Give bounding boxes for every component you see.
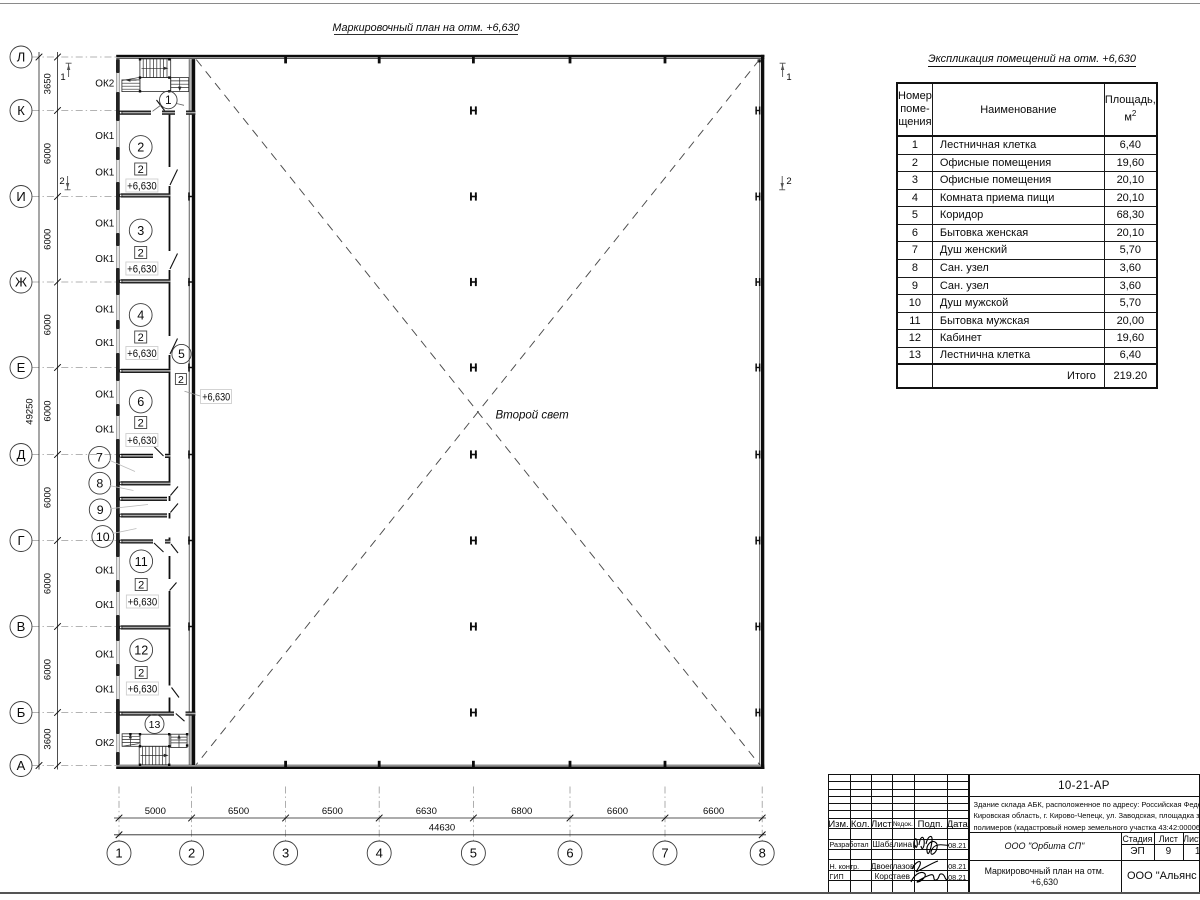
svg-text:ОК1: ОК1: [95, 131, 114, 142]
svg-text:1: 1: [165, 95, 171, 107]
svg-text:5000: 5000: [145, 806, 166, 817]
svg-text:2: 2: [138, 332, 144, 344]
svg-text:6000: 6000: [43, 229, 54, 250]
svg-text:Л: Л: [17, 50, 26, 65]
svg-text:+6,630: +6,630: [202, 392, 230, 404]
svg-text:И: И: [16, 189, 25, 204]
svg-text:6600: 6600: [607, 806, 628, 817]
svg-text:6000: 6000: [43, 487, 54, 508]
svg-text:5: 5: [178, 347, 185, 361]
svg-text:6000: 6000: [43, 143, 54, 164]
svg-text:6600: 6600: [703, 806, 724, 817]
svg-text:6800: 6800: [511, 806, 532, 817]
svg-text:4: 4: [376, 846, 383, 861]
svg-text:+6,630: +6,630: [128, 684, 158, 696]
svg-text:6500: 6500: [322, 806, 343, 817]
svg-text:7: 7: [661, 846, 668, 861]
svg-text:+6,630: +6,630: [127, 435, 157, 447]
svg-text:6000: 6000: [43, 400, 54, 421]
svg-text:8: 8: [759, 846, 766, 861]
svg-text:7: 7: [96, 451, 103, 465]
svg-text:6000: 6000: [43, 314, 54, 335]
svg-text:Б: Б: [17, 705, 26, 720]
svg-text:3600: 3600: [43, 728, 54, 749]
svg-text:ОК1: ОК1: [95, 425, 114, 436]
svg-text:1: 1: [60, 72, 65, 83]
svg-text:2: 2: [188, 846, 195, 861]
svg-text:10: 10: [96, 530, 110, 544]
svg-text:ОК2: ОК2: [95, 79, 114, 90]
svg-text:ОК1: ОК1: [95, 338, 114, 349]
svg-text:6630: 6630: [416, 806, 437, 817]
svg-text:2: 2: [138, 418, 144, 430]
svg-text:2: 2: [137, 141, 144, 155]
svg-text:+6,630: +6,630: [127, 348, 157, 360]
svg-text:6: 6: [566, 846, 573, 861]
svg-text:+6,630: +6,630: [128, 597, 158, 609]
svg-text:Г: Г: [17, 533, 24, 548]
svg-text:ОК1: ОК1: [95, 390, 114, 401]
svg-text:1: 1: [115, 846, 122, 861]
svg-text:Ж: Ж: [15, 275, 27, 290]
svg-text:Второй свет: Второй свет: [496, 409, 570, 421]
svg-text:ОК1: ОК1: [95, 650, 114, 661]
svg-text:1: 1: [786, 72, 791, 83]
svg-text:49250: 49250: [25, 398, 36, 424]
svg-text:2: 2: [138, 668, 144, 680]
svg-text:ОК1: ОК1: [95, 168, 114, 179]
svg-text:5: 5: [470, 846, 477, 861]
svg-text:3: 3: [282, 846, 289, 861]
svg-text:6: 6: [137, 395, 144, 409]
svg-text:Д: Д: [17, 447, 26, 462]
svg-text:6500: 6500: [228, 806, 249, 817]
svg-text:6000: 6000: [43, 573, 54, 594]
svg-text:ОК1: ОК1: [95, 254, 114, 265]
svg-text:Маркировочный план на отм. +6,: Маркировочный план на отм. +6,630: [332, 22, 519, 34]
svg-text:13: 13: [149, 719, 161, 731]
svg-text:ОК1: ОК1: [95, 600, 114, 611]
svg-text:В: В: [17, 619, 26, 634]
svg-text:2: 2: [138, 248, 144, 260]
svg-text:Е: Е: [17, 360, 26, 375]
svg-text:12: 12: [134, 644, 148, 658]
svg-text:ОК1: ОК1: [95, 305, 114, 316]
svg-text:4: 4: [137, 309, 144, 323]
svg-text:+6,630: +6,630: [127, 181, 157, 193]
svg-text:44630: 44630: [429, 823, 455, 834]
svg-text:ОК1: ОК1: [95, 685, 114, 696]
svg-text:ОК1: ОК1: [95, 566, 114, 577]
svg-text:3: 3: [137, 224, 144, 238]
svg-text:6000: 6000: [43, 659, 54, 680]
svg-text:11: 11: [135, 555, 148, 569]
svg-text:+6,630: +6,630: [127, 264, 157, 276]
svg-text:9: 9: [97, 503, 104, 517]
svg-text:2: 2: [138, 164, 144, 176]
svg-text:3650: 3650: [43, 73, 54, 94]
svg-text:ОК2: ОК2: [95, 738, 114, 749]
svg-text:2: 2: [178, 374, 184, 386]
svg-text:2: 2: [138, 580, 144, 592]
svg-text:2: 2: [786, 176, 791, 187]
svg-text:2: 2: [59, 176, 64, 187]
svg-text:ОК1: ОК1: [95, 219, 114, 230]
svg-text:К: К: [17, 103, 25, 118]
svg-text:8: 8: [96, 477, 103, 491]
svg-text:А: А: [17, 758, 26, 773]
